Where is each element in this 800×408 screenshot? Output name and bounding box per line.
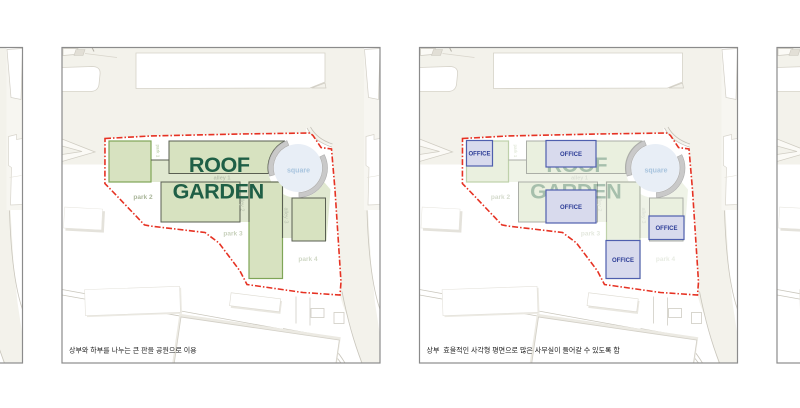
svg-text:상부 효율적인 사각형 평면으로 많은 사무실이 들어갈: 상부 효율적인 사각형 평면으로 많은 사무실이 들어갈 수 있도록 함 [427,346,621,355]
svg-text:상부와 하부를 나누는 큰 판을 공원으로 이용: 상부와 하부를 나누는 큰 판을 공원으로 이용 [69,346,197,355]
